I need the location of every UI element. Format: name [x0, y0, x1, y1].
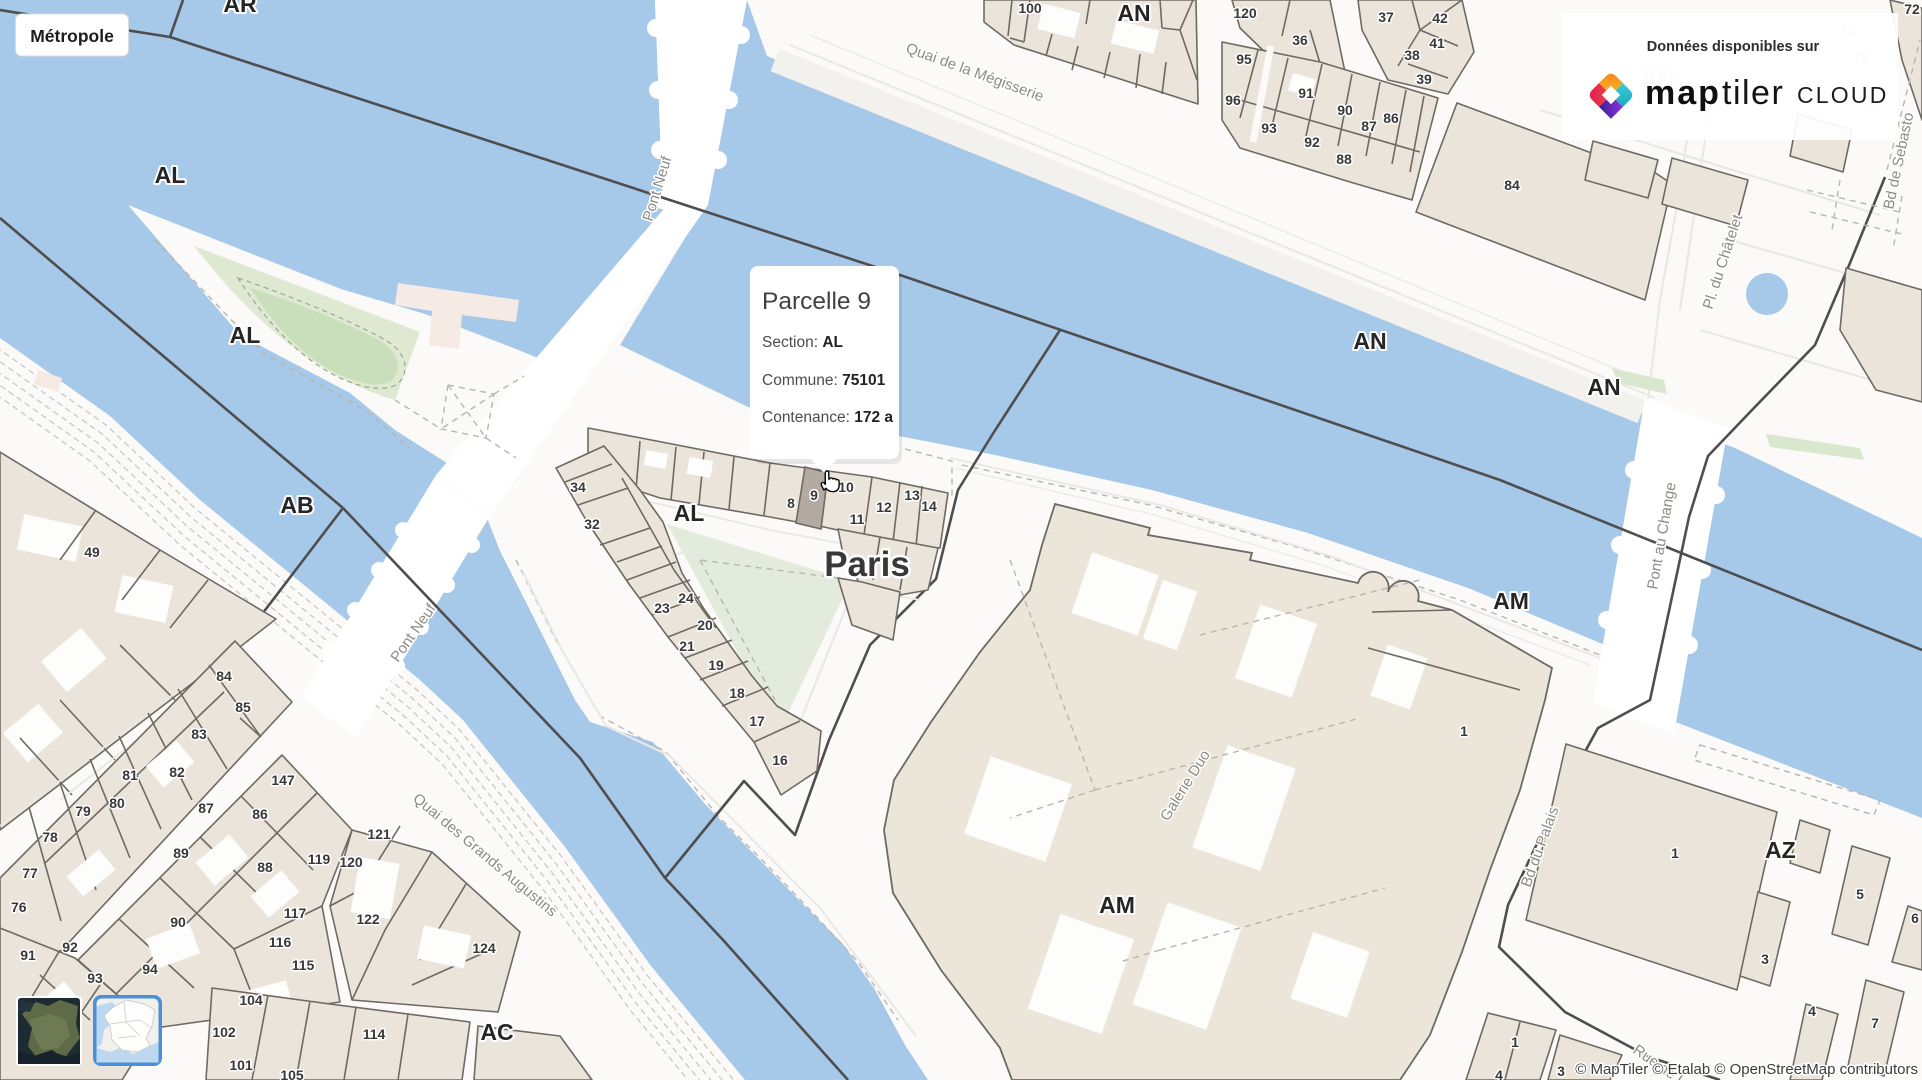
- svg-text:84: 84: [216, 668, 232, 684]
- svg-text:11: 11: [850, 511, 865, 527]
- svg-text:5: 5: [1856, 886, 1864, 902]
- svg-text:86: 86: [1383, 110, 1399, 126]
- svg-text:Section: AL: Section: AL: [762, 334, 843, 351]
- svg-text:119: 119: [308, 851, 331, 867]
- svg-text:93: 93: [87, 970, 103, 986]
- svg-text:95: 95: [1236, 51, 1252, 67]
- svg-text:90: 90: [170, 914, 186, 930]
- svg-text:9: 9: [810, 487, 818, 503]
- svg-text:AB: AB: [280, 492, 313, 518]
- svg-text:76: 76: [11, 899, 27, 915]
- svg-text:102: 102: [212, 1024, 236, 1040]
- svg-text:101: 101: [229, 1057, 253, 1073]
- svg-text:117: 117: [284, 905, 307, 921]
- svg-text:115: 115: [292, 957, 315, 973]
- svg-text:AN: AN: [1587, 374, 1620, 400]
- svg-text:91: 91: [1298, 85, 1314, 101]
- svg-text:85: 85: [235, 699, 251, 715]
- svg-text:34: 34: [570, 479, 586, 495]
- svg-text:10: 10: [838, 479, 854, 495]
- svg-text:Paris: Paris: [824, 545, 910, 584]
- svg-text:89: 89: [173, 845, 189, 861]
- svg-text:14: 14: [921, 498, 937, 514]
- svg-text:23: 23: [654, 600, 670, 616]
- svg-text:7: 7: [1871, 1015, 1879, 1031]
- svg-text:88: 88: [257, 859, 273, 875]
- svg-text:13: 13: [904, 487, 920, 503]
- svg-text:122: 122: [356, 911, 380, 927]
- svg-text:105: 105: [280, 1067, 304, 1080]
- svg-text:Métropole: Métropole: [30, 26, 114, 46]
- svg-text:AC: AC: [480, 1019, 513, 1045]
- svg-text:78: 78: [42, 829, 58, 845]
- svg-text:90: 90: [1337, 102, 1353, 118]
- svg-text:Contenance: 172 a: Contenance: 172 a: [762, 409, 893, 426]
- svg-text:92: 92: [1304, 134, 1320, 150]
- svg-text:104: 104: [239, 992, 263, 1008]
- svg-text:3: 3: [1557, 1063, 1565, 1079]
- svg-text:1: 1: [1671, 845, 1679, 861]
- svg-text:37: 37: [1378, 9, 1394, 25]
- svg-text:4: 4: [1808, 1003, 1816, 1019]
- svg-text:36: 36: [1292, 32, 1308, 48]
- svg-text:81: 81: [122, 767, 138, 783]
- svg-text:AM: AM: [1493, 588, 1529, 614]
- svg-text:87: 87: [1361, 118, 1377, 134]
- svg-text:Parcelle 9: Parcelle 9: [762, 288, 871, 315]
- svg-text:49: 49: [84, 544, 100, 560]
- svg-text:AZ: AZ: [1765, 837, 1796, 863]
- svg-text:79: 79: [75, 803, 91, 819]
- svg-text:88: 88: [1336, 151, 1352, 167]
- svg-text:42: 42: [1432, 10, 1448, 26]
- svg-text:91: 91: [20, 947, 36, 963]
- svg-text:16: 16: [772, 752, 788, 768]
- svg-text:38: 38: [1404, 47, 1420, 63]
- svg-text:94: 94: [142, 961, 158, 977]
- svg-text:8: 8: [787, 495, 795, 511]
- svg-text:12: 12: [876, 499, 892, 515]
- svg-text:AL: AL: [155, 162, 186, 188]
- svg-text:121: 121: [367, 826, 391, 842]
- svg-text:map: map: [1645, 74, 1721, 112]
- svg-text:93: 93: [1261, 120, 1277, 136]
- svg-text:120: 120: [1233, 5, 1257, 21]
- svg-text:82: 82: [169, 764, 185, 780]
- svg-text:86: 86: [252, 806, 268, 822]
- svg-text:Commune: 75101: Commune: 75101: [762, 372, 886, 389]
- svg-text:1: 1: [1511, 1034, 1519, 1050]
- svg-text:1: 1: [1460, 723, 1468, 739]
- svg-text:6: 6: [1911, 910, 1919, 926]
- svg-text:© MapTiler © Etalab © OpenStre: © MapTiler © Etalab © OpenStreetMap cont…: [1575, 1061, 1918, 1078]
- svg-text:AM: AM: [1099, 892, 1135, 918]
- svg-text:3: 3: [1761, 951, 1769, 967]
- svg-text:20: 20: [697, 617, 713, 633]
- svg-text:124: 124: [472, 940, 496, 956]
- svg-text:72: 72: [1904, 1, 1920, 17]
- svg-text:CLOUD: CLOUD: [1797, 82, 1889, 108]
- svg-text:84: 84: [1504, 177, 1520, 193]
- svg-text:AN: AN: [1117, 0, 1150, 26]
- svg-text:100: 100: [1018, 0, 1042, 16]
- svg-text:32: 32: [584, 516, 600, 532]
- svg-text:AL: AL: [230, 322, 261, 348]
- svg-text:AL: AL: [674, 500, 705, 526]
- svg-text:4: 4: [1495, 1067, 1503, 1080]
- svg-text:21: 21: [679, 638, 695, 654]
- svg-text:19: 19: [708, 657, 724, 673]
- svg-text:41: 41: [1429, 35, 1445, 51]
- svg-text:87: 87: [198, 800, 214, 816]
- svg-text:17: 17: [749, 713, 765, 729]
- svg-text:77: 77: [22, 865, 38, 881]
- svg-text:83: 83: [191, 726, 207, 742]
- svg-text:116: 116: [269, 934, 292, 950]
- svg-text:Données disponibles sur: Données disponibles sur: [1647, 39, 1820, 55]
- svg-text:39: 39: [1416, 71, 1432, 87]
- svg-text:AN: AN: [1353, 328, 1386, 354]
- svg-text:96: 96: [1225, 92, 1241, 108]
- svg-text:92: 92: [62, 939, 78, 955]
- svg-text:AR: AR: [223, 0, 257, 17]
- svg-text:80: 80: [109, 795, 125, 811]
- svg-text:18: 18: [729, 685, 745, 701]
- svg-text:114: 114: [363, 1026, 386, 1042]
- svg-text:120: 120: [339, 854, 363, 870]
- svg-text:tiler: tiler: [1722, 74, 1784, 112]
- svg-text:24: 24: [678, 590, 694, 606]
- svg-text:147: 147: [271, 772, 295, 788]
